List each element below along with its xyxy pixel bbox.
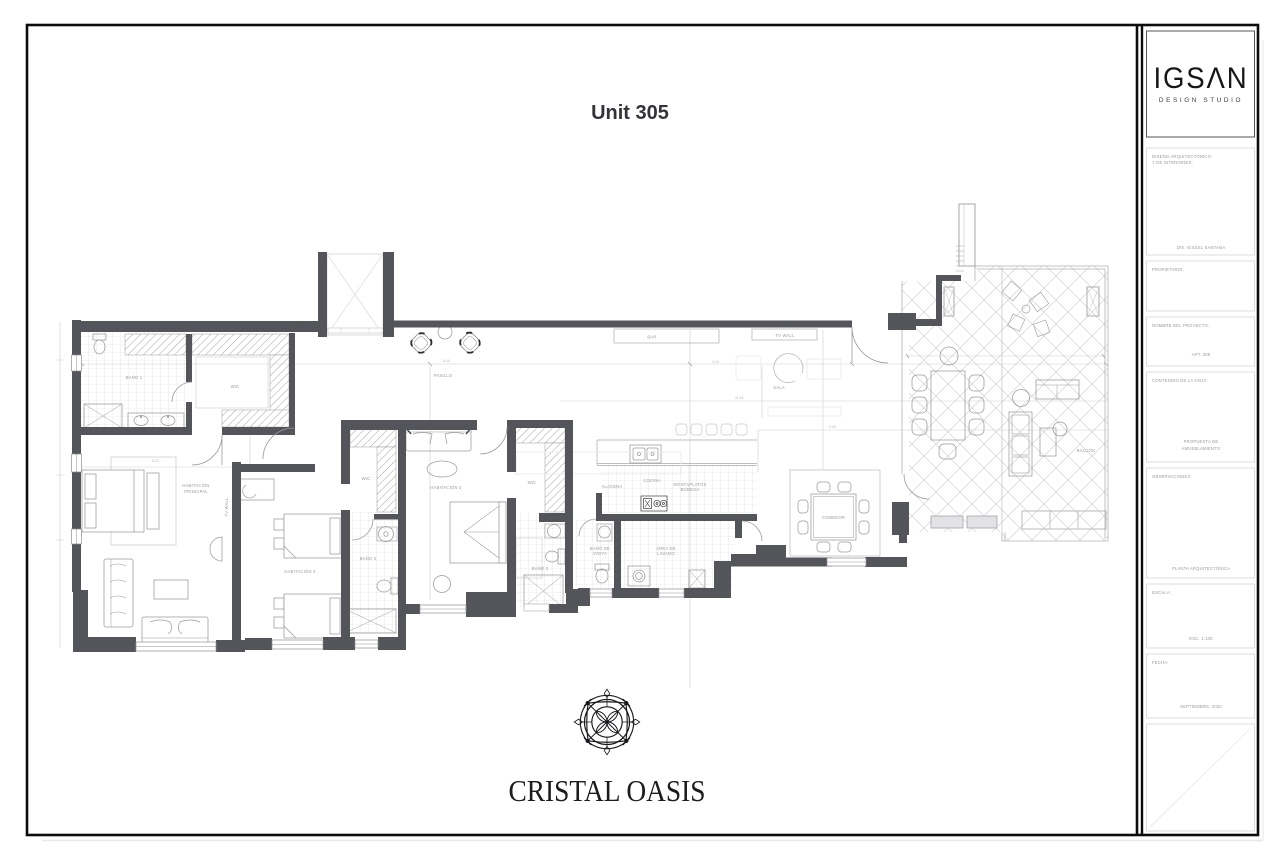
svg-text:Y DE INTERIORES:: Y DE INTERIORES: <box>1152 160 1193 165</box>
svg-text:CRISTAL OASIS: CRISTAL OASIS <box>509 773 706 808</box>
svg-text:5.13: 5.13 <box>152 459 159 463</box>
svg-text:HABITACIÓN 2: HABITACIÓN 2 <box>284 569 316 574</box>
svg-text:FECHA:: FECHA: <box>1152 660 1169 665</box>
svg-text:APT. 305: APT. 305 <box>1192 352 1211 357</box>
svg-text:OBSERVACIONES:: OBSERVACIONES: <box>1152 474 1192 479</box>
svg-text:COCINA: COCINA <box>643 478 661 483</box>
svg-text:WIC: WIC <box>528 480 537 485</box>
svg-text:BAÑO 3: BAÑO 3 <box>532 566 549 571</box>
svg-text:TV WALL: TV WALL <box>775 333 795 338</box>
svg-text:HABITACIÓN: HABITACIÓN <box>182 483 209 488</box>
svg-text:PRINCIPAL: PRINCIPAL <box>184 489 208 494</box>
svg-text:ESCALA:: ESCALA: <box>1152 590 1171 595</box>
svg-text:DIS. IGSSEL SANTANA: DIS. IGSSEL SANTANA <box>1177 245 1226 250</box>
svg-text:LAVADO: LAVADO <box>657 551 675 556</box>
svg-text:NOMBRE DEL PROYECTO:: NOMBRE DEL PROYECTO: <box>1152 323 1209 328</box>
svg-text:VISITA: VISITA <box>593 551 607 556</box>
svg-text:BAÑO 1: BAÑO 1 <box>126 375 143 380</box>
svg-text:BODEGA: BODEGA <box>680 487 699 492</box>
svg-text:BAR: BAR <box>647 335 656 340</box>
svg-text:HABITACIÓN 3: HABITACIÓN 3 <box>430 485 462 490</box>
svg-text:11.18: 11.18 <box>735 396 744 400</box>
svg-text:WIC: WIC <box>231 384 240 389</box>
svg-text:PASILLO: PASILLO <box>434 373 453 378</box>
svg-text:ESC. 1:100: ESC. 1:100 <box>1189 636 1213 641</box>
svg-text:COMEDOR: COMEDOR <box>822 515 845 520</box>
svg-text:SALA: SALA <box>773 385 785 390</box>
svg-text:5.40: 5.40 <box>443 359 450 363</box>
svg-text:4.19: 4.19 <box>712 360 719 364</box>
svg-text:SEPTIEMBRE, 2020: SEPTIEMBRE, 2020 <box>1180 704 1222 709</box>
svg-text:DISEÑO ARQUITECTÓNICO: DISEÑO ARQUITECTÓNICO <box>1152 154 1212 159</box>
svg-text:DESIGN STUDIO: DESIGN STUDIO <box>1159 97 1243 104</box>
svg-text:4.40: 4.40 <box>829 425 836 429</box>
svg-text:PROPUESTA DE: PROPUESTA DE <box>1184 439 1219 444</box>
svg-text:WIC: WIC <box>362 476 371 481</box>
svg-text:BAÑO 2: BAÑO 2 <box>360 556 377 561</box>
svg-text:CONTENIDO DE LA HOJA:: CONTENIDO DE LA HOJA: <box>1152 378 1208 383</box>
svg-text:BALCÓN: BALCÓN <box>1077 448 1095 453</box>
svg-text:PROPIETARIO:: PROPIETARIO: <box>1152 267 1184 272</box>
svg-text:ALACENA: ALACENA <box>602 484 623 489</box>
svg-text:AMUEBLAMIENTO: AMUEBLAMIENTO <box>1182 446 1221 451</box>
svg-text:Unit 305: Unit 305 <box>591 102 669 124</box>
svg-text:TV WALL: TV WALL <box>224 497 229 517</box>
svg-text:PLANTA ARQUITECTÓNICA: PLANTA ARQUITECTÓNICA <box>1172 566 1230 571</box>
svg-text:IGSΛN: IGSΛN <box>1154 62 1249 95</box>
